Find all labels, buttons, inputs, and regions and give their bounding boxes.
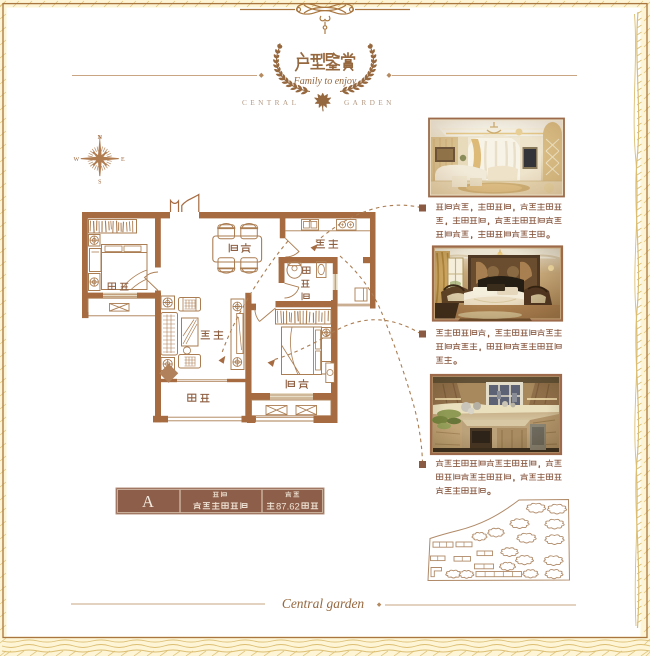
svg-text:Family to enjoy: Family to enjoy	[293, 76, 357, 87]
svg-text:Central garden: Central garden	[282, 596, 365, 611]
svg-text:CENTRAL: CENTRAL	[242, 98, 299, 107]
svg-text:87.62: 87.62	[276, 502, 300, 513]
svg-text:E: E	[121, 157, 125, 163]
svg-text:GARDEN: GARDEN	[344, 98, 395, 107]
svg-text:S: S	[98, 180, 101, 186]
svg-text:N: N	[98, 135, 103, 141]
svg-text:A: A	[142, 492, 154, 511]
svg-text:W: W	[73, 157, 79, 163]
